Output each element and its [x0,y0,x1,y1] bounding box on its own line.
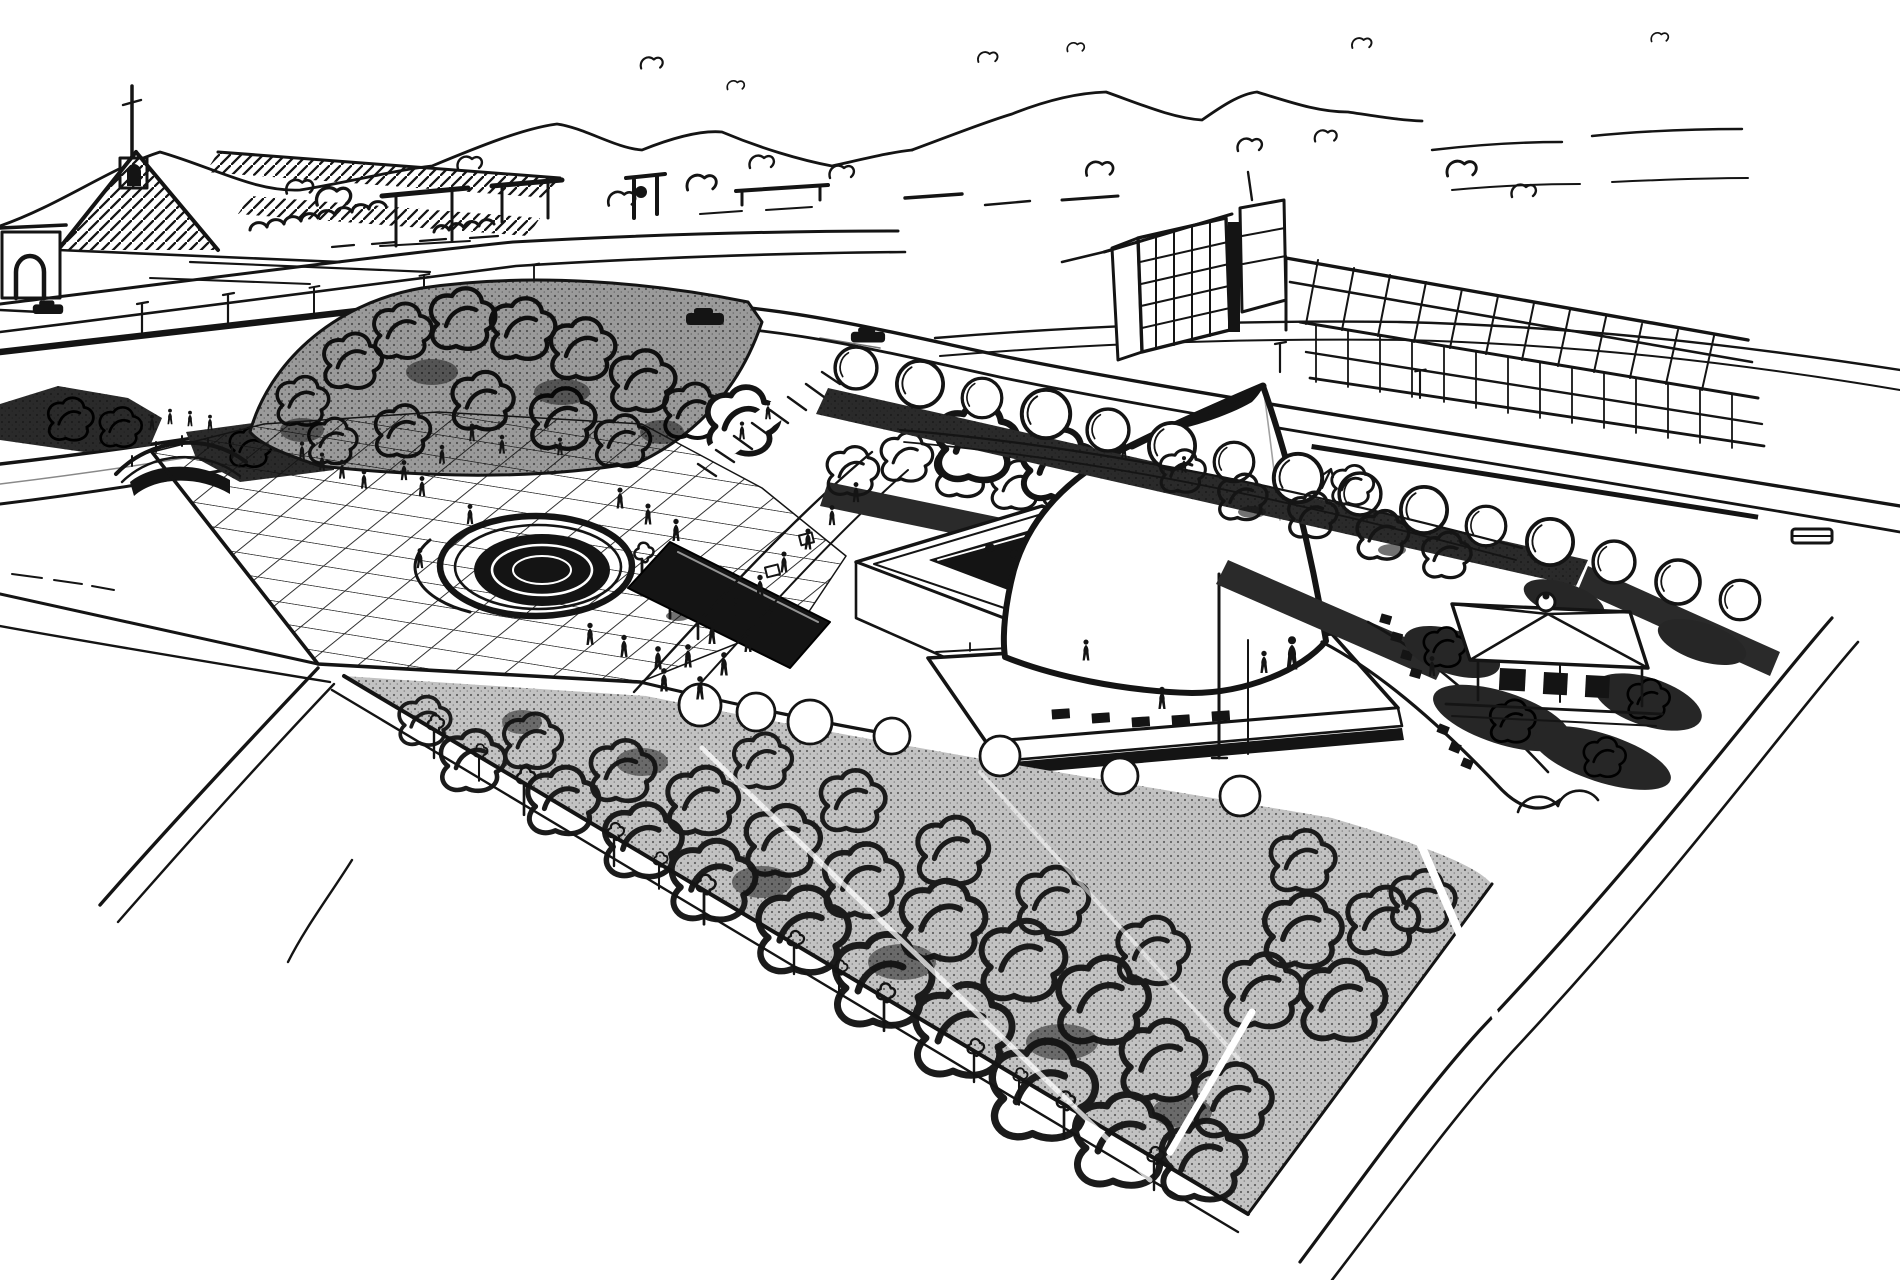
town-center: Distant town structures [380,174,1118,246]
background-trees: Background tree curls [286,130,1536,205]
pavilion-hedges: Hedges around the pavilion [1398,571,1752,812]
sketch-canvas: Architectural concept sketch — aerial pe… [0,0,1900,1280]
forest: Dense forest [332,676,1492,1232]
church: Church with spire and hatched roofs [58,86,560,284]
sky-marks: Sky scribbles [641,33,1669,90]
tower-building: Gridded office block [1062,172,1286,360]
sketch: Distant hills Sky scribbles Church with … [0,0,1900,1280]
